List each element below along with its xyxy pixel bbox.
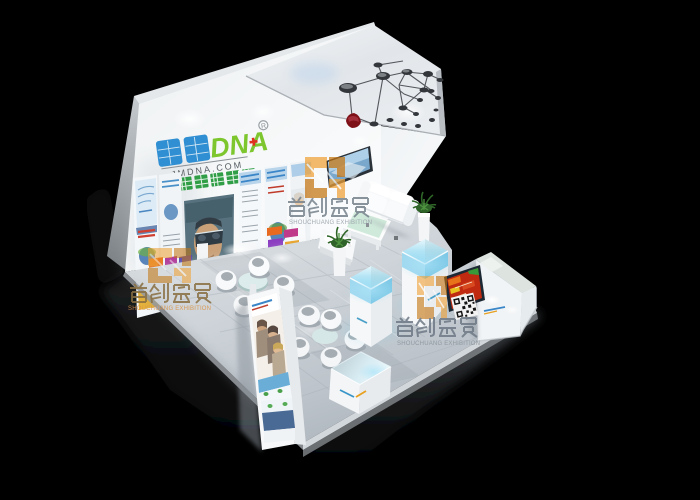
svg-text:SHOUCHUANG EXHIBITION: SHOUCHUANG EXHIBITION: [397, 341, 480, 347]
svg-text:SHOUCHUANG EXHIBITION: SHOUCHUANG EXHIBITION: [289, 220, 372, 226]
svg-text:R: R: [261, 123, 267, 131]
svg-text:SHOUCHUANG EXHIBITION: SHOUCHUANG EXHIBITION: [128, 306, 211, 312]
